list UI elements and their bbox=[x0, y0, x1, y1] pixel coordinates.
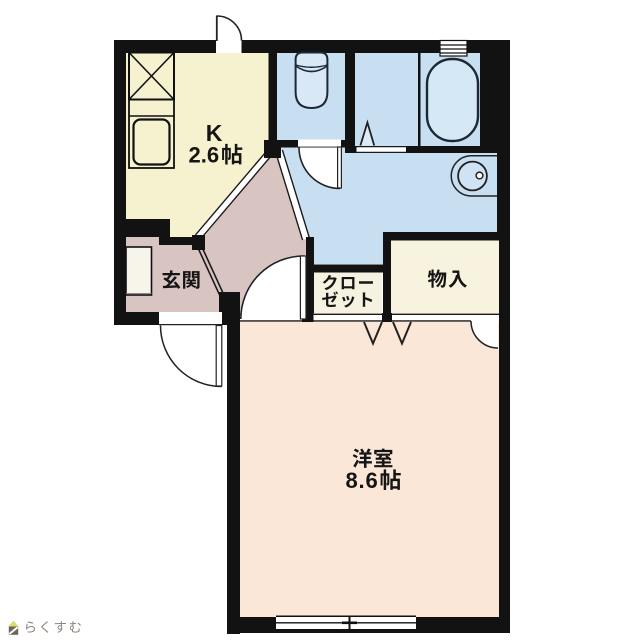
svg-text:8.6: 8.6 bbox=[346, 468, 379, 493]
svg-text:2.6: 2.6 bbox=[189, 143, 220, 168]
